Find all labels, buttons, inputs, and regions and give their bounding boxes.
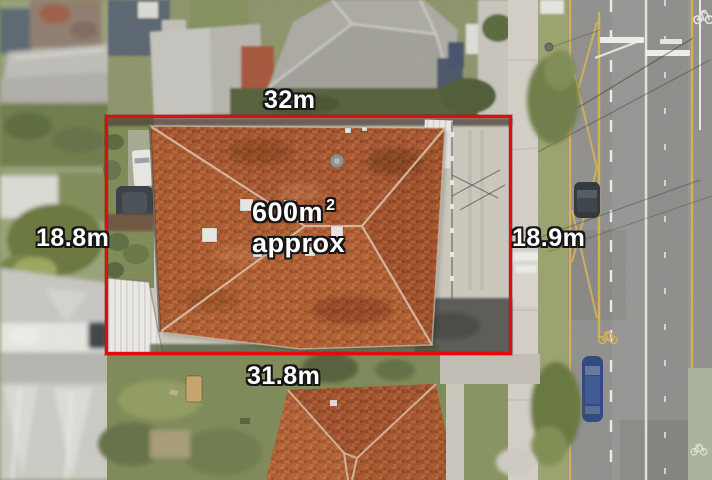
dimension-label-left: 18.8m (36, 226, 109, 251)
area-qualifier: approx (252, 230, 345, 257)
area-superscript: 2 (326, 197, 335, 214)
area-value: 600m (252, 197, 323, 227)
area-label: 600m2 approx (252, 199, 345, 257)
dimension-label-bottom: 31.8m (247, 364, 320, 389)
aerial-photo-canvas: 32m 18.8m 18.9m 31.8m 600m2 approx (0, 0, 712, 480)
dimension-label-right: 18.9m (512, 226, 585, 251)
dimension-label-top: 32m (264, 88, 316, 113)
